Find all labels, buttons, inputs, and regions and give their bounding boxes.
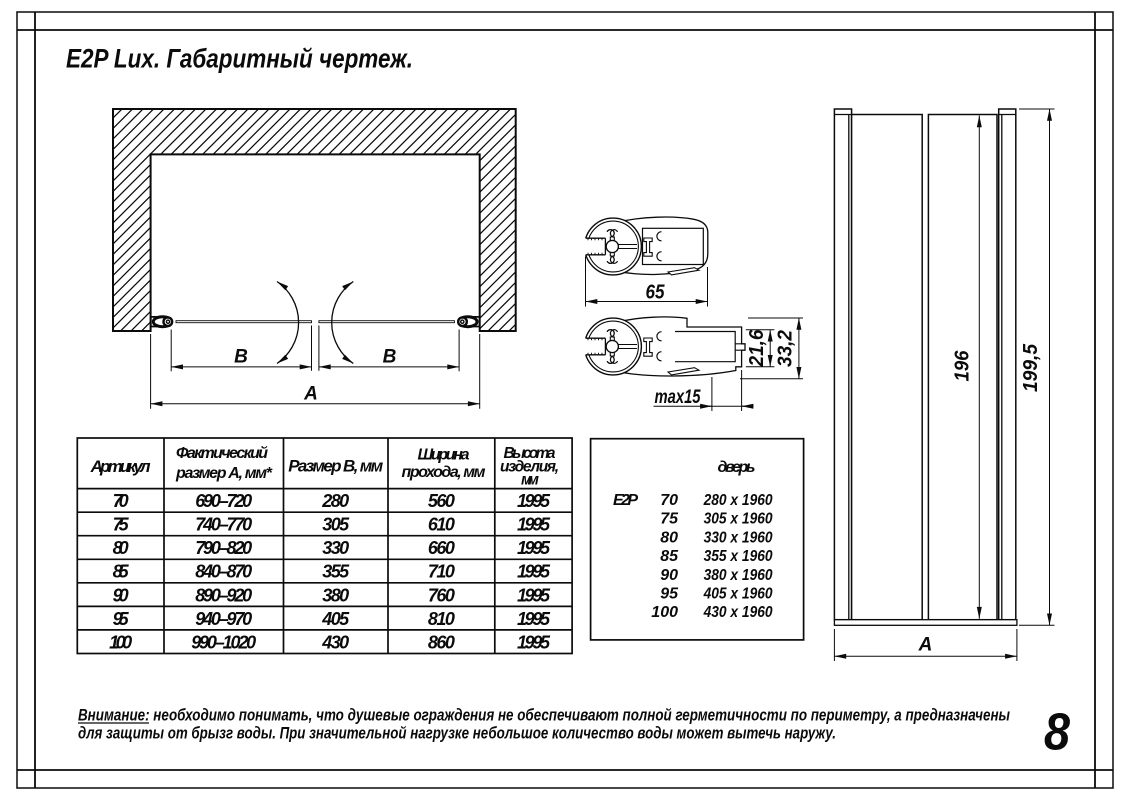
- svg-text:305 x 1960: 305 x 1960: [704, 511, 773, 528]
- svg-text:Внимание: необходимо понимать,: Внимание: необходимо понимать, что душев…: [78, 706, 1010, 725]
- svg-text:355 x 1960: 355 x 1960: [704, 548, 773, 565]
- svg-text:90: 90: [660, 567, 678, 584]
- svg-text:max15: max15: [655, 387, 701, 408]
- svg-text:Артикул: Артикул: [90, 457, 151, 476]
- svg-text:100: 100: [651, 604, 678, 621]
- svg-text:330 x 1960: 330 x 1960: [704, 529, 773, 546]
- svg-text:85: 85: [113, 562, 130, 582]
- svg-text:21,6: 21,6: [746, 329, 768, 368]
- svg-text:430 x 1960: 430 x 1960: [703, 604, 773, 621]
- svg-text:330: 330: [322, 538, 349, 558]
- svg-text:75: 75: [660, 511, 679, 528]
- svg-text:90: 90: [113, 585, 129, 605]
- svg-text:A: A: [303, 384, 318, 405]
- svg-text:1995: 1995: [517, 585, 551, 605]
- svg-text:660: 660: [428, 538, 455, 558]
- svg-text:405 x 1960: 405 x 1960: [703, 586, 773, 603]
- svg-text:760: 760: [428, 585, 455, 605]
- svg-text:199,5: 199,5: [1020, 343, 1042, 392]
- svg-text:1995: 1995: [517, 538, 551, 558]
- svg-text:прохода, мм: прохода, мм: [402, 464, 486, 481]
- svg-text:840–870: 840–870: [195, 562, 252, 582]
- svg-text:80: 80: [660, 529, 678, 546]
- svg-text:690–720: 690–720: [195, 491, 252, 511]
- svg-text:305: 305: [322, 515, 350, 535]
- svg-text:65: 65: [646, 282, 666, 304]
- svg-text:80: 80: [113, 538, 129, 558]
- svg-text:790–820: 790–820: [195, 538, 252, 558]
- svg-text:860: 860: [428, 632, 455, 652]
- svg-text:70: 70: [113, 491, 129, 511]
- svg-text:Фактический: Фактический: [176, 445, 268, 462]
- svg-text:B: B: [383, 347, 397, 368]
- svg-text:280: 280: [321, 491, 349, 511]
- svg-text:E2P Lux. Габаритный чертеж.: E2P Lux. Габаритный чертеж.: [66, 44, 413, 74]
- svg-text:B: B: [234, 347, 248, 368]
- svg-text:380: 380: [322, 585, 349, 605]
- svg-text:560: 560: [428, 491, 455, 511]
- svg-text:33,2: 33,2: [775, 330, 797, 367]
- svg-text:Ширина: Ширина: [418, 447, 470, 464]
- svg-text:890–920: 890–920: [195, 585, 252, 605]
- svg-text:710: 710: [428, 562, 455, 582]
- svg-text:размер А, мм*: размер А, мм*: [175, 465, 273, 482]
- svg-text:75: 75: [113, 515, 130, 535]
- svg-text:940–970: 940–970: [195, 609, 252, 629]
- svg-text:280 x 1960: 280 x 1960: [703, 492, 773, 509]
- svg-text:990–1020: 990–1020: [191, 632, 256, 652]
- svg-text:430: 430: [321, 632, 349, 652]
- svg-text:95: 95: [660, 586, 679, 603]
- svg-text:95: 95: [113, 609, 130, 629]
- svg-text:100: 100: [109, 632, 132, 652]
- svg-text:1995: 1995: [517, 491, 551, 511]
- svg-text:8: 8: [1044, 704, 1070, 762]
- svg-text:мм: мм: [521, 472, 540, 489]
- svg-text:A: A: [918, 635, 933, 656]
- svg-text:380 x 1960: 380 x 1960: [704, 567, 773, 584]
- svg-text:610: 610: [428, 515, 455, 535]
- svg-text:1995: 1995: [517, 562, 551, 582]
- svg-text:85: 85: [660, 548, 679, 565]
- svg-text:810: 810: [428, 609, 455, 629]
- svg-text:Размер В, мм: Размер В, мм: [288, 457, 383, 476]
- svg-text:70: 70: [660, 492, 678, 509]
- svg-text:1995: 1995: [517, 632, 551, 652]
- svg-text:для защиты от брызг воды. При: для защиты от брызг воды. При значительн…: [78, 724, 836, 743]
- svg-text:196: 196: [952, 350, 974, 382]
- svg-text:355: 355: [322, 562, 350, 582]
- svg-text:1995: 1995: [517, 609, 551, 629]
- svg-text:1995: 1995: [517, 515, 551, 535]
- svg-text:дверь: дверь: [718, 459, 756, 476]
- svg-text:405: 405: [321, 609, 350, 629]
- svg-text:740–770: 740–770: [195, 515, 252, 535]
- svg-text:E2P: E2P: [613, 492, 638, 509]
